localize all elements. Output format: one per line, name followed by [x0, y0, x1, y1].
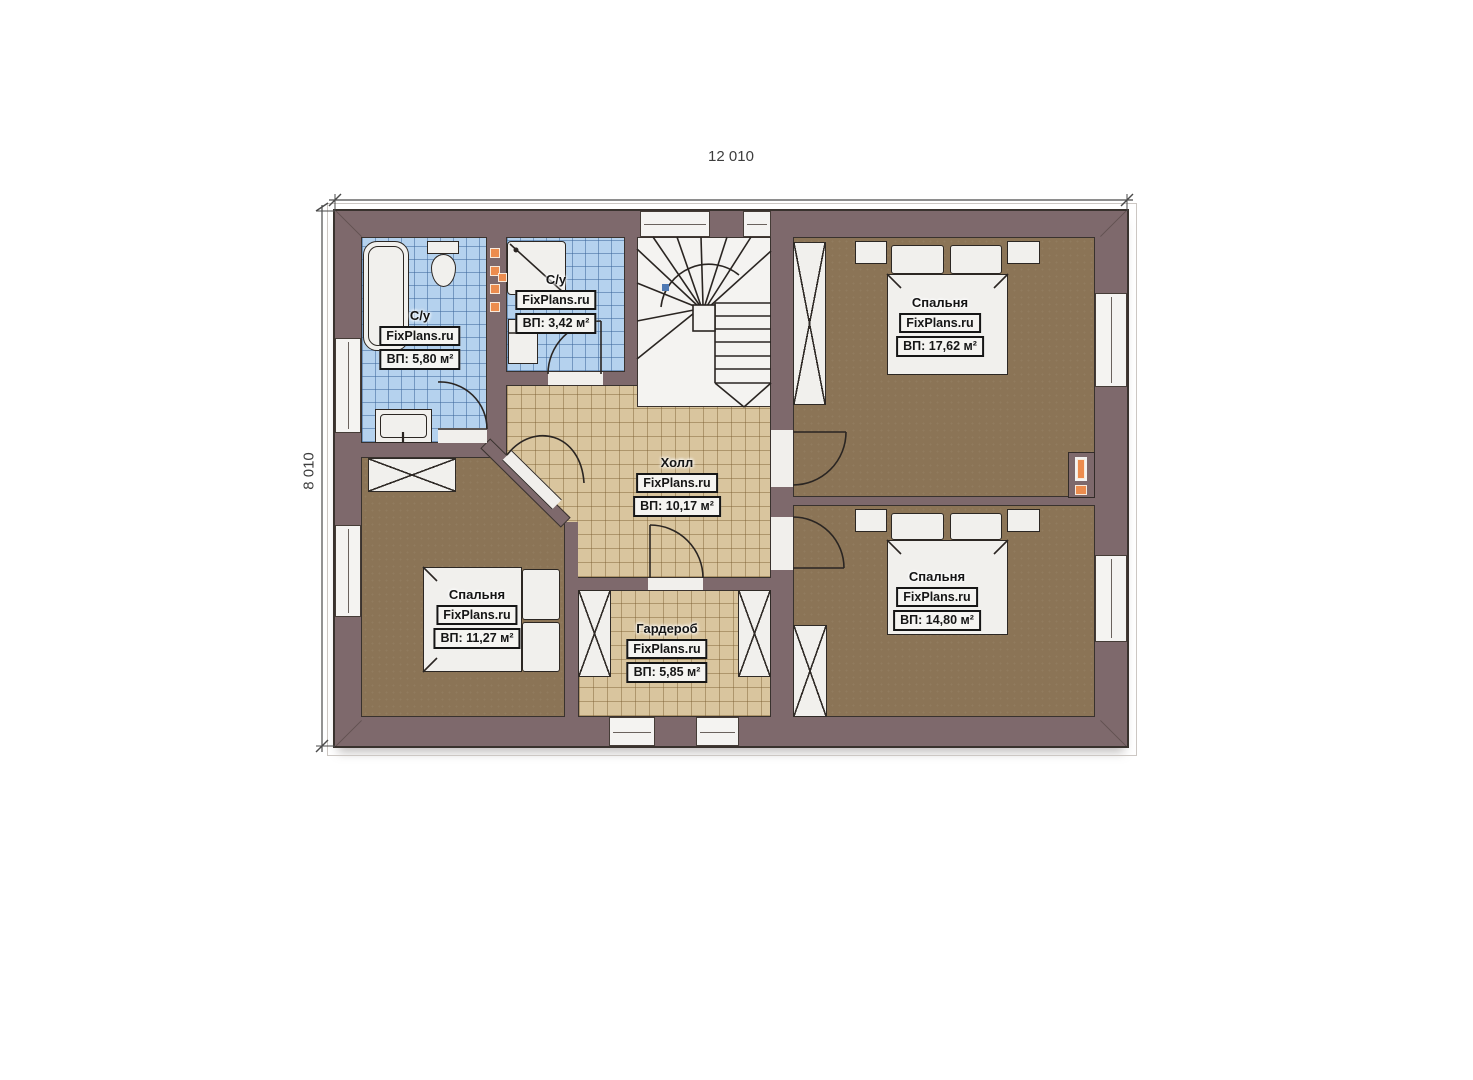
chimney-right	[1068, 452, 1095, 498]
room-area: ВП: 11,27 м²	[433, 628, 520, 648]
room-area: ВП: 17,62 м²	[896, 336, 984, 356]
chimney-block	[1075, 485, 1087, 495]
room-area: ВП: 10,17 м²	[633, 496, 721, 516]
room-name: С/у	[546, 272, 566, 287]
room-area: ВП: 3,42 м²	[516, 313, 597, 333]
label-bath-left: С/у FixPlans.ru ВП: 5,80 м²	[379, 308, 460, 370]
staircase-floor	[637, 237, 771, 407]
closet-bedroom-top-right	[793, 242, 826, 405]
window-bottom-wardrobe-2	[696, 717, 739, 746]
label-bedroom-bottom-right: Спальня FixPlans.ru ВП: 14,80 м²	[893, 569, 981, 631]
brand-watermark: FixPlans.ru	[899, 313, 980, 333]
flue-block-5	[490, 302, 500, 312]
label-bedroom-bottom-left: Спальня FixPlans.ru ВП: 11,27 м²	[433, 587, 520, 649]
doorway-wardrobe	[648, 578, 703, 590]
sink-left-bathroom	[375, 409, 432, 443]
brand-watermark: FixPlans.ru	[436, 605, 517, 625]
brand-watermark: FixPlans.ru	[896, 587, 977, 607]
label-bedroom-top-right: Спальня FixPlans.ru ВП: 17,62 м²	[896, 295, 984, 357]
closet-wardrobe-right	[738, 590, 771, 677]
window-left-bathroom	[335, 338, 361, 433]
page-canvas: { "plan": { "title": "Second floor plan"…	[0, 0, 1473, 1080]
doorway-bath-top	[548, 372, 603, 385]
window-bottom-wardrobe-1	[609, 717, 655, 746]
brand-watermark: FixPlans.ru	[636, 473, 717, 493]
chimney-slot	[1075, 457, 1087, 481]
pillow	[950, 513, 1002, 540]
brand-watermark: FixPlans.ru	[379, 326, 460, 346]
flue-wall-squares	[484, 237, 506, 444]
doorway-bath-left	[438, 428, 487, 443]
pillow	[522, 569, 560, 620]
closet-bedroom-bottom-left	[368, 458, 456, 492]
room-name: С/у	[410, 308, 430, 323]
closet-bedroom-bottom-right	[793, 625, 827, 717]
nightstand	[1007, 241, 1040, 264]
nightstand	[855, 241, 887, 264]
room-area: ВП: 14,80 м²	[893, 610, 981, 630]
brand-watermark: FixPlans.ru	[626, 639, 707, 659]
room-name: Спальня	[912, 295, 968, 310]
floor-plan: 12 010 8 010	[335, 211, 1127, 746]
pillow	[522, 622, 560, 672]
window-top-stairs-2	[743, 211, 771, 237]
room-name: Спальня	[909, 569, 965, 584]
sink-basin	[380, 414, 427, 438]
room-name: Холл	[661, 455, 694, 470]
label-wardrobe: Гардероб FixPlans.ru ВП: 5,85 м²	[626, 621, 707, 683]
height-dimension-value: 8 010	[301, 452, 318, 490]
label-hall: Холл FixPlans.ru ВП: 10,17 м²	[633, 455, 721, 517]
flue-block-3	[498, 273, 507, 282]
flue-block-4	[490, 284, 500, 294]
doorway-bedroom-top-right	[771, 430, 793, 487]
closet-wardrobe-left	[578, 590, 611, 677]
room-name: Гардероб	[636, 621, 697, 636]
room-name: Спальня	[449, 587, 505, 602]
chimney-flame	[1077, 459, 1085, 479]
flue-block-1	[490, 248, 500, 258]
window-left-bedroom	[335, 525, 361, 617]
brand-watermark: FixPlans.ru	[515, 290, 596, 310]
doorway-bedroom-bottom-right	[771, 517, 793, 570]
window-top-stairs-1	[640, 211, 710, 237]
toilet-tank	[427, 241, 459, 254]
nightstand	[1007, 509, 1040, 532]
room-area: ВП: 5,80 м²	[380, 349, 461, 369]
pillow	[950, 245, 1002, 274]
window-right-bedroom-top	[1095, 293, 1127, 387]
pillow	[891, 513, 944, 540]
room-area: ВП: 5,85 м²	[627, 662, 708, 682]
pillow	[891, 245, 944, 274]
width-dimension-value: 12 010	[708, 148, 754, 165]
window-right-bedroom-bottom	[1095, 555, 1127, 642]
nightstand	[855, 509, 887, 532]
label-bath-top: С/у FixPlans.ru ВП: 3,42 м²	[515, 272, 596, 334]
